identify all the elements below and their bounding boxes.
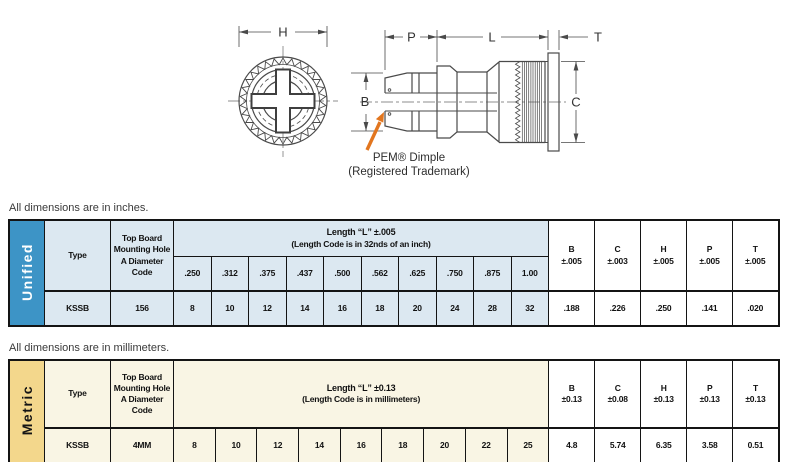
dimple-mark bbox=[388, 89, 391, 92]
dim-header-b: B±0.13 bbox=[549, 360, 595, 428]
dim-value-p: .141 bbox=[687, 291, 733, 326]
side-view: P L T B bbox=[348, 30, 602, 179]
hole-a-cell: 156 bbox=[111, 291, 174, 326]
dim-label-t: T bbox=[594, 30, 602, 45]
dim-header-t: T±0.13 bbox=[733, 360, 779, 428]
length-col-header: .750 bbox=[436, 257, 474, 292]
length-code-cell: 18 bbox=[382, 428, 424, 462]
dim-value-h: .250 bbox=[641, 291, 687, 326]
metric-side-label: Metric bbox=[9, 360, 45, 462]
length-code-cell: 32 bbox=[511, 291, 549, 326]
length-header: Length “L” ±0.13 (Length Code is in mill… bbox=[174, 360, 549, 428]
millimeters-note: All dimensions are in millimeters. bbox=[9, 342, 792, 354]
dimple-annotation-line2: (Registered Trademark) bbox=[348, 166, 470, 178]
dim-value-p: 3.58 bbox=[687, 428, 733, 462]
dim-value-b: 4.8 bbox=[549, 428, 595, 462]
type-header: Type bbox=[45, 220, 111, 291]
dim-value-h: 6.35 bbox=[641, 428, 687, 462]
length-code-cell: 10 bbox=[211, 291, 249, 326]
length-header: Length “L” ±.005 (Length Code is in 32nd… bbox=[174, 220, 549, 257]
dim-header-h: H±0.13 bbox=[641, 360, 687, 428]
length-col-header: 1.00 bbox=[511, 257, 549, 292]
dim-value-b: .188 bbox=[549, 291, 595, 326]
dim-header-h: H±.005 bbox=[641, 220, 687, 291]
dim-header-t: T±.005 bbox=[733, 220, 779, 291]
dim-header-p: P±0.13 bbox=[687, 360, 733, 428]
length-code-cell: 25 bbox=[507, 428, 549, 462]
dim-value-t: .020 bbox=[733, 291, 779, 326]
hole-a-header: Top Board Mounting Hole A Diameter Code bbox=[111, 220, 174, 291]
part-drawing: H bbox=[0, 0, 792, 196]
dim-label-p: P bbox=[407, 30, 416, 45]
length-code-cell: 22 bbox=[465, 428, 507, 462]
dim-label-h: H bbox=[278, 25, 287, 40]
length-col-header: .375 bbox=[249, 257, 287, 292]
hole-a-header: Top Board Mounting Hole A Diameter Code bbox=[111, 360, 174, 428]
length-code-cell: 16 bbox=[324, 291, 362, 326]
hole-a-cell: 4MM bbox=[111, 428, 174, 462]
dim-label-c: C bbox=[571, 95, 580, 110]
type-cell: KSSB bbox=[45, 428, 111, 462]
length-code-cell: 12 bbox=[249, 291, 287, 326]
length-col-header: .875 bbox=[474, 257, 512, 292]
dim-header-c: C±0.08 bbox=[595, 360, 641, 428]
metric-table: Metric Type Top Board Mounting Hole A Di… bbox=[8, 359, 780, 462]
inches-note: All dimensions are in inches. bbox=[9, 202, 792, 214]
length-code-cell: 8 bbox=[174, 428, 216, 462]
length-col-header: .562 bbox=[361, 257, 399, 292]
dimple-mark bbox=[388, 113, 391, 116]
dim-header-p: P±.005 bbox=[687, 220, 733, 291]
dim-header-b: B±.005 bbox=[549, 220, 595, 291]
length-code-cell: 28 bbox=[474, 291, 512, 326]
length-code-cell: 24 bbox=[436, 291, 474, 326]
unified-table: Unified Type Top Board Mounting Hole A D… bbox=[8, 219, 780, 327]
dim-value-t: 0.51 bbox=[733, 428, 779, 462]
dim-value-c: .226 bbox=[595, 291, 641, 326]
length-col-header: .500 bbox=[324, 257, 362, 292]
length-code-cell: 20 bbox=[399, 291, 437, 326]
length-code-cell: 18 bbox=[361, 291, 399, 326]
dim-header-c: C±.003 bbox=[595, 220, 641, 291]
type-cell: KSSB bbox=[45, 291, 111, 326]
length-code-cell: 8 bbox=[174, 291, 212, 326]
length-code-cell: 14 bbox=[286, 291, 324, 326]
length-col-header: .625 bbox=[399, 257, 437, 292]
length-col-header: .250 bbox=[174, 257, 212, 292]
length-code-cell: 12 bbox=[257, 428, 299, 462]
length-col-header: .437 bbox=[286, 257, 324, 292]
dim-label-b: B bbox=[361, 94, 370, 109]
dimension-t bbox=[559, 30, 588, 50]
length-code-cell: 16 bbox=[340, 428, 382, 462]
front-view: H bbox=[228, 25, 338, 158]
dim-value-c: 5.74 bbox=[595, 428, 641, 462]
unified-data-row: KSSB 156 8 10 12 14 16 18 20 24 28 32 .1… bbox=[9, 291, 779, 326]
length-col-header: .312 bbox=[211, 257, 249, 292]
length-code-cell: 20 bbox=[424, 428, 466, 462]
metric-data-row: KSSB 4MM 8 10 12 14 16 18 20 22 25 4.8 5… bbox=[9, 428, 779, 462]
dim-label-l: L bbox=[488, 30, 495, 45]
length-code-cell: 10 bbox=[215, 428, 257, 462]
length-code-cell: 14 bbox=[299, 428, 341, 462]
type-header: Type bbox=[45, 360, 111, 428]
unified-side-label: Unified bbox=[9, 220, 45, 326]
datasheet-page: H bbox=[0, 0, 792, 462]
dimple-annotation-line1: PEM® Dimple bbox=[373, 152, 445, 164]
